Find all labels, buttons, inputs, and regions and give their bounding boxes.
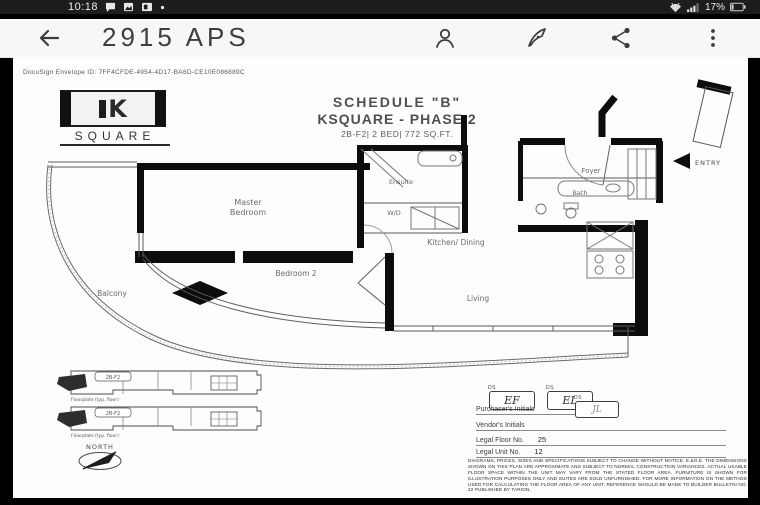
purchaser-initials-label: Purchaser's Initials <box>476 406 535 413</box>
sign-pen-button[interactable] <box>524 25 550 51</box>
legal-unit-label: Legal Unit No. <box>476 449 520 456</box>
legal-floor-value: 25 <box>538 435 546 444</box>
image-notification-icon <box>123 2 134 12</box>
overflow-menu-button[interactable] <box>700 25 726 51</box>
balcony-edge <box>47 165 628 369</box>
ensuite-tub <box>418 151 462 166</box>
contacts-button[interactable] <box>432 25 458 51</box>
entry-label: ENTRY <box>695 159 721 167</box>
room-label-living: Living <box>467 294 490 303</box>
fixtures <box>361 149 656 278</box>
vendor-initials-label: Vendor's Initials <box>476 422 525 429</box>
chat-notification-icon <box>105 2 116 12</box>
more-notifications-dot-icon <box>160 5 165 10</box>
entry-arrow-icon <box>673 153 690 169</box>
room-label-bedroom2: Bedroom 2 <box>275 269 316 278</box>
vendor-initial-field[interactable]: DS JL <box>575 401 619 418</box>
legal-floor-row: Legal Floor No. 25 <box>476 435 726 446</box>
legal-floor-label: Legal Floor No. <box>476 437 524 444</box>
clock: 10:18 <box>68 1 98 13</box>
room-label-foyer: Foyer <box>581 167 601 175</box>
foyer-closet <box>628 149 656 199</box>
door-swing <box>364 225 392 253</box>
bath-sink <box>536 204 546 214</box>
app-bar: 2915 APS <box>0 19 760 58</box>
disclaimer-text: DIAGRAMS, PRICES, SIZES AND SPECIFICATIO… <box>468 458 747 493</box>
share-button[interactable] <box>608 25 634 51</box>
cell-signal-icon <box>687 2 700 13</box>
room-label-wd: W/D <box>387 209 401 217</box>
room-label-bath: Bath <box>572 189 587 197</box>
keyplan-caption: Floorplate (typ. floor) <box>71 397 119 403</box>
corridor-wall <box>602 97 615 138</box>
back-button[interactable] <box>36 25 62 51</box>
screenshot-notification-icon <box>141 2 153 12</box>
vendor-initials: JL <box>592 405 602 415</box>
keyplan-unit-highlight <box>57 374 87 391</box>
docusign-tag: DS <box>574 395 582 401</box>
keyplan-1: 2B-F2 Floorplate (typ. floor) <box>57 371 261 403</box>
room-label-balcony: Balcony <box>97 289 127 298</box>
room-label-master-1: Master <box>234 198 262 207</box>
vendor-initials-row: Vendor's Initials <box>476 422 726 431</box>
floorplan-drawing: Master Bedroom Ensuite W/D Foyer Bath Ki… <box>13 57 748 498</box>
phone-screen: 10:18 <box>0 0 760 505</box>
legal-unit-value: 12 <box>534 447 542 456</box>
keyplan-unit-tag: 2B-F2 <box>106 375 120 381</box>
docusign-tag: DS <box>546 385 554 391</box>
north-label: NORTH <box>86 443 114 451</box>
purchaser-initials-row: Purchaser's Initials <box>476 406 591 415</box>
docusign-tag: DS <box>488 385 496 391</box>
room-label-ensuite: Ensuite <box>389 178 413 186</box>
corridor-door <box>693 87 733 148</box>
status-bar: 10:18 <box>0 0 760 14</box>
room-label-master-2: Bedroom <box>230 208 266 217</box>
wifi-icon <box>669 2 682 13</box>
walls <box>135 79 731 336</box>
keyplan-2 <box>57 407 261 439</box>
north-compass-icon: NORTH <box>79 443 121 470</box>
room-label-kitchen: Kitchen/ Dining <box>427 238 485 247</box>
entry-door-swing <box>565 145 603 185</box>
legal-unit-row: Legal Unit No. 12 <box>476 447 726 458</box>
battery-percent: 17% <box>705 2 725 13</box>
stove <box>587 251 633 278</box>
battery-icon <box>730 2 746 12</box>
pdf-page[interactable]: DocuSign Envelope ID: 7FF4CFDE-4954-4D17… <box>13 57 748 498</box>
document-title: 2915 APS <box>102 22 250 53</box>
